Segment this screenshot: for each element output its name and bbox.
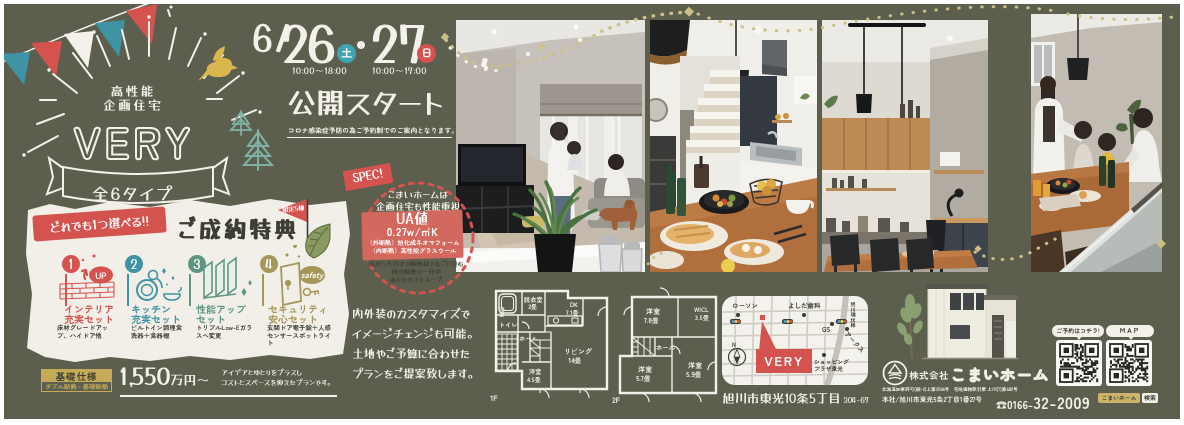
svg-text:3.5畳: 3.5畳 bbox=[695, 313, 709, 322]
svg-text:ホール: ホール bbox=[519, 334, 538, 343]
svg-text:2畳: 2畳 bbox=[528, 302, 537, 311]
svg-text:プラザ東光: プラザ東光 bbox=[814, 364, 843, 373]
svg-text:よしだ歯科: よしだ歯科 bbox=[788, 300, 821, 310]
svg-text:旭川環状線: 旭川環状線 bbox=[849, 302, 857, 328]
svg-text:5.9畳: 5.9畳 bbox=[686, 370, 701, 380]
svg-text:14畳: 14畳 bbox=[567, 356, 581, 366]
svg-text:浴室: 浴室 bbox=[498, 306, 506, 317]
svg-text:1F: 1F bbox=[489, 393, 498, 404]
svg-text:ローソン: ローソン bbox=[732, 300, 758, 310]
svg-text:7.8畳: 7.8畳 bbox=[644, 316, 659, 326]
svg-text:GS: GS bbox=[822, 324, 830, 334]
svg-text:5.7畳: 5.7畳 bbox=[636, 374, 651, 384]
svg-text:7.1畳: 7.1畳 bbox=[566, 308, 579, 317]
svg-text:safety: safety bbox=[301, 270, 324, 281]
svg-text:VERY: VERY bbox=[764, 350, 804, 370]
svg-text:2F: 2F bbox=[612, 395, 621, 404]
svg-text:UP: UP bbox=[95, 269, 107, 282]
svg-text:ホール: ホール bbox=[656, 343, 676, 352]
svg-text:トイレ: トイレ bbox=[499, 320, 518, 329]
svg-text:4.5畳: 4.5畳 bbox=[527, 375, 541, 384]
svg-text:N: N bbox=[732, 340, 736, 349]
